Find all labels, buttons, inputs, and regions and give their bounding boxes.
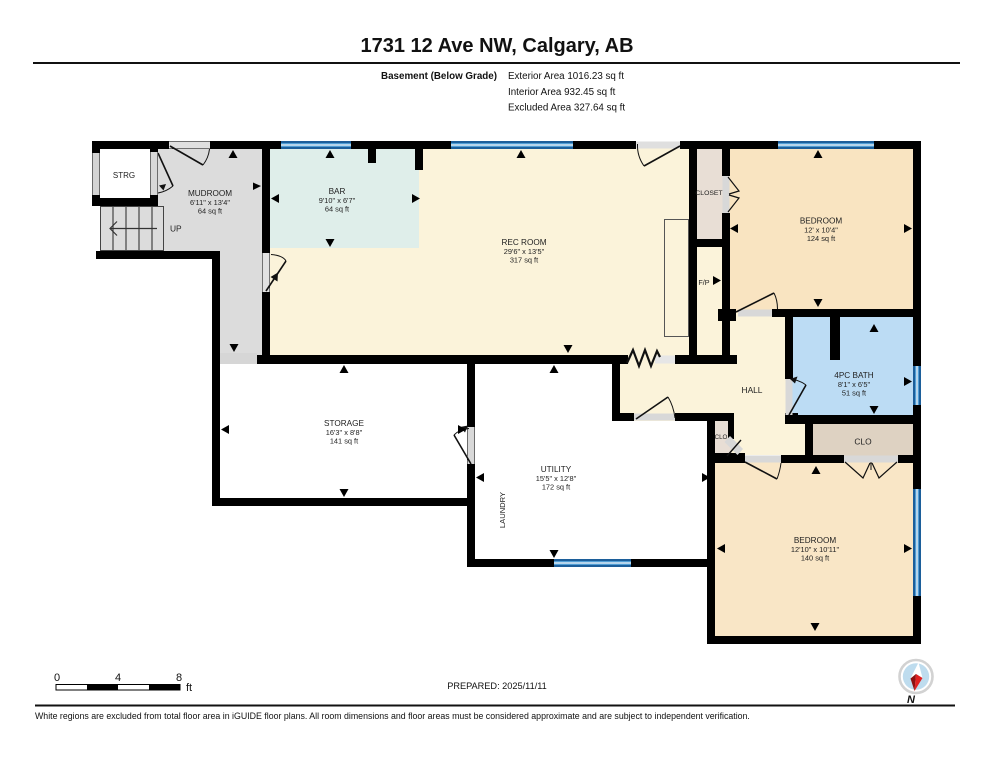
svg-text:64 sq ft: 64 sq ft — [198, 207, 222, 216]
svg-text:N: N — [907, 694, 916, 706]
svg-text:4PC BATH: 4PC BATH — [834, 371, 874, 380]
svg-text:Interior Area 932.45 sq ft: Interior Area 932.45 sq ft — [508, 87, 616, 98]
svg-text:STRG: STRG — [113, 171, 135, 180]
svg-text:4: 4 — [115, 672, 121, 684]
svg-text:UP: UP — [170, 224, 182, 234]
svg-text:STORAGE: STORAGE — [324, 419, 364, 428]
svg-text:BEDROOM: BEDROOM — [800, 217, 842, 226]
svg-text:BAR: BAR — [329, 187, 346, 196]
svg-text:BEDROOM: BEDROOM — [794, 536, 836, 545]
svg-text:F/P: F/P — [698, 278, 709, 287]
svg-text:White regions are excluded fro: White regions are excluded from total fl… — [35, 711, 750, 721]
svg-text:PREPARED: 2025/11/11: PREPARED: 2025/11/11 — [447, 681, 547, 691]
svg-text:64 sq ft: 64 sq ft — [325, 205, 349, 214]
svg-text:CLOSET: CLOSET — [695, 190, 722, 197]
svg-text:LAUNDRY: LAUNDRY — [498, 492, 507, 528]
svg-text:HALL: HALL — [742, 385, 763, 395]
svg-text:0: 0 — [54, 672, 60, 684]
svg-text:Excluded Area 327.64 sq ft: Excluded Area 327.64 sq ft — [508, 103, 625, 114]
svg-text:ft: ft — [186, 682, 192, 694]
svg-text:124 sq ft: 124 sq ft — [807, 234, 835, 243]
svg-text:Basement (Below Grade): Basement (Below Grade) — [381, 71, 497, 82]
svg-text:51 sq ft: 51 sq ft — [842, 389, 866, 398]
svg-text:317 sq ft: 317 sq ft — [510, 256, 538, 265]
svg-text:MUDROOM: MUDROOM — [188, 189, 232, 198]
svg-text:172 sq ft: 172 sq ft — [542, 483, 570, 492]
svg-text:CLO: CLO — [854, 437, 872, 447]
svg-text:REC ROOM: REC ROOM — [501, 238, 546, 247]
svg-text:UTILITY: UTILITY — [541, 465, 572, 474]
svg-text:8: 8 — [176, 672, 182, 684]
svg-text:140 sq ft: 140 sq ft — [801, 554, 829, 563]
svg-text:Exterior Area 1016.23 sq ft: Exterior Area 1016.23 sq ft — [508, 71, 624, 82]
svg-text:1731 12 Ave NW, Calgary, AB: 1731 12 Ave NW, Calgary, AB — [360, 35, 633, 57]
svg-text:CLO: CLO — [715, 434, 728, 441]
svg-text:141 sq ft: 141 sq ft — [330, 437, 358, 446]
